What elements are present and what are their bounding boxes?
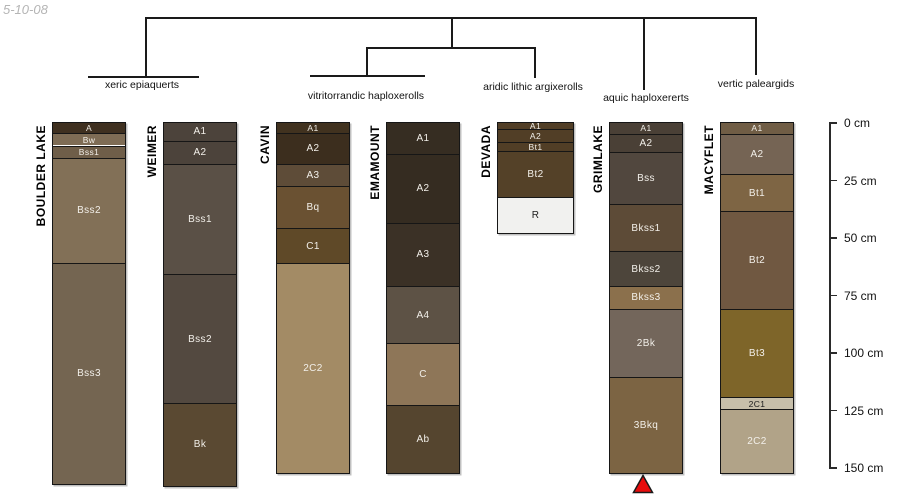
horizon-label: Bt2 [527, 169, 543, 180]
profile-name-label: DEVADA [479, 125, 493, 178]
depth-tick-label: 125 cm [844, 404, 883, 418]
horizon-segment: A1 [498, 123, 573, 130]
horizon-label: C1 [306, 241, 320, 252]
depth-tick-label: 50 cm [844, 231, 877, 245]
horizon-label: C [419, 369, 427, 380]
soil-profile-column-emamount: A1A2A3A4CAb [386, 122, 460, 475]
horizon-label: Ab [416, 434, 429, 445]
horizon-segment: Bt1 [721, 174, 793, 211]
horizon-segment: A [53, 123, 125, 133]
horizon-segment: A2 [277, 133, 349, 164]
horizon-label: Bss2 [188, 334, 212, 345]
depth-tick-label: 75 cm [844, 289, 877, 303]
horizon-segment: Bss3 [53, 263, 125, 484]
horizon-segment: Bkss2 [610, 251, 682, 286]
horizon-label: A1 [193, 126, 206, 137]
tree-group-label: vitritorrandic haploxerolls [308, 90, 424, 102]
depth-tick [829, 467, 837, 469]
depth-tick [829, 237, 837, 239]
horizon-label: 3Bkq [634, 420, 658, 431]
horizon-segment: Bkss3 [610, 286, 682, 309]
horizon-label: A2 [530, 131, 541, 141]
horizon-segment: A4 [387, 286, 459, 344]
tree-group-label: vertic paleargids [718, 78, 794, 90]
tree-line [88, 76, 199, 78]
horizon-segment: C1 [277, 228, 349, 263]
horizon-segment: A2 [498, 129, 573, 142]
horizon-label: Bt2 [749, 255, 765, 266]
horizon-segment: A2 [610, 134, 682, 152]
soil-profile-column-weimer: A1A2Bss1Bss2Bk [163, 122, 237, 487]
tree-line [310, 75, 425, 77]
horizon-label: R [532, 210, 540, 221]
horizon-label: Bk [194, 439, 206, 450]
horizon-segment: Bq [277, 186, 349, 229]
profile-name-label: BOULDER LAKE [34, 125, 48, 226]
horizon-segment: A1 [610, 123, 682, 135]
tree-group-label: xeric epiaquerts [105, 79, 179, 91]
depth-tick [829, 295, 837, 297]
horizon-segment: 2C2 [721, 409, 793, 473]
horizon-segment: Bss2 [164, 274, 236, 403]
depth-tick [829, 180, 837, 182]
depth-tick-label: 100 cm [844, 346, 883, 360]
horizon-label: A1 [751, 123, 762, 133]
soil-profile-column-macyflet: A1A2Bt1Bt2Bt32C12C2 [720, 122, 794, 475]
tree-line [755, 17, 757, 75]
tree-group-label: aridic lithic argixerolls [483, 81, 583, 93]
horizon-label: A3 [306, 170, 319, 181]
soil-profile-column-devada: A1A2Bt1Bt2R [497, 122, 574, 234]
horizon-label: A2 [750, 149, 763, 160]
horizon-label: Bss1 [188, 214, 212, 225]
horizon-label: A4 [416, 310, 429, 321]
horizon-label: A1 [307, 123, 318, 133]
horizon-label: Bw [83, 135, 96, 145]
horizon-segment: Bss [610, 152, 682, 204]
horizon-label: Bt3 [749, 348, 765, 359]
depth-tick [829, 352, 837, 354]
horizon-segment: Bt1 [498, 142, 573, 151]
horizon-label: A1 [640, 123, 651, 133]
horizon-segment: A1 [277, 123, 349, 133]
horizon-segment: R [498, 197, 573, 233]
profile-name-label: EMAMOUNT [368, 125, 382, 200]
horizon-label: A2 [193, 147, 206, 158]
horizon-label: Bss2 [77, 205, 101, 216]
horizon-segment: Bss1 [53, 146, 125, 159]
horizon-segment: A2 [387, 154, 459, 223]
horizon-label: A2 [639, 138, 652, 149]
tree-group-label: aquic haploxererts [603, 92, 689, 104]
horizon-label: Bq [306, 202, 319, 213]
horizon-segment: A1 [164, 123, 236, 141]
horizon-label: Bkss2 [631, 264, 660, 275]
horizon-segment: Bk [164, 403, 236, 486]
horizon-segment: Bss1 [164, 164, 236, 274]
horizon-label: Bss [637, 173, 655, 184]
depth-tick [829, 410, 837, 412]
horizon-label: A [86, 123, 92, 133]
soil-profile-column-boulder-lake: ABwBss1Bss2Bss3 [52, 122, 126, 485]
horizon-label: A2 [416, 183, 429, 194]
horizon-segment: A3 [387, 223, 459, 286]
tree-line [145, 17, 147, 76]
horizon-label: 2C2 [303, 363, 323, 374]
soil-profile-figure: 5-10-08 xeric epiaquertsvitritorrandic h… [0, 0, 900, 500]
horizon-segment: Ab [387, 405, 459, 473]
horizon-label: A3 [416, 249, 429, 260]
horizon-segment: C [387, 343, 459, 405]
tree-line [366, 47, 368, 75]
horizon-segment: 2Bk [610, 309, 682, 377]
horizon-segment: A3 [277, 164, 349, 186]
horizon-segment: A2 [164, 141, 236, 164]
horizon-label: Bkss1 [631, 223, 660, 234]
depth-tick-label: 0 cm [844, 116, 870, 130]
horizon-segment: 2C2 [277, 263, 349, 473]
horizon-label: Bkss3 [631, 292, 660, 303]
horizon-label: Bss3 [77, 368, 101, 379]
red-triangle-icon [632, 474, 654, 494]
horizon-segment: 3Bkq [610, 377, 682, 474]
tree-line [451, 17, 453, 47]
depth-tick [829, 122, 837, 124]
depth-tick-label: 150 cm [844, 461, 883, 475]
horizon-segment: 2C1 [721, 397, 793, 409]
profile-name-label: CAVIN [258, 125, 272, 164]
profile-name-label: GRIMLAKE [591, 125, 605, 193]
horizon-segment: A1 [387, 123, 459, 154]
horizon-label: 2Bk [637, 338, 655, 349]
depth-tick-label: 25 cm [844, 174, 877, 188]
horizon-segment: A1 [721, 123, 793, 135]
soil-profile-column-cavin: A1A2A3BqC12C2 [276, 122, 350, 475]
horizon-label: 2C2 [747, 436, 767, 447]
horizon-segment: Bkss1 [610, 204, 682, 251]
tree-line [534, 47, 536, 78]
horizon-label: A2 [306, 143, 319, 154]
horizon-segment: Bw [53, 133, 125, 146]
horizon-segment: Bt2 [721, 211, 793, 309]
date-label: 5-10-08 [3, 2, 48, 17]
soil-profile-column-grimlake: A1A2BssBkss1Bkss2Bkss32Bk3Bkq [609, 122, 683, 475]
tree-line [643, 17, 645, 90]
profile-name-label: MACYFLET [702, 125, 716, 194]
horizon-segment: Bt2 [498, 151, 573, 197]
horizon-label: 2C1 [749, 399, 766, 409]
horizon-label: Bss1 [79, 147, 100, 157]
horizon-segment: Bss2 [53, 158, 125, 263]
profile-name-label: WEIMER [145, 125, 159, 177]
horizon-segment: Bt3 [721, 309, 793, 398]
horizon-label: A1 [416, 133, 429, 144]
horizon-label: Bt1 [749, 188, 765, 199]
horizon-segment: A2 [721, 134, 793, 174]
tree-line [366, 47, 536, 49]
